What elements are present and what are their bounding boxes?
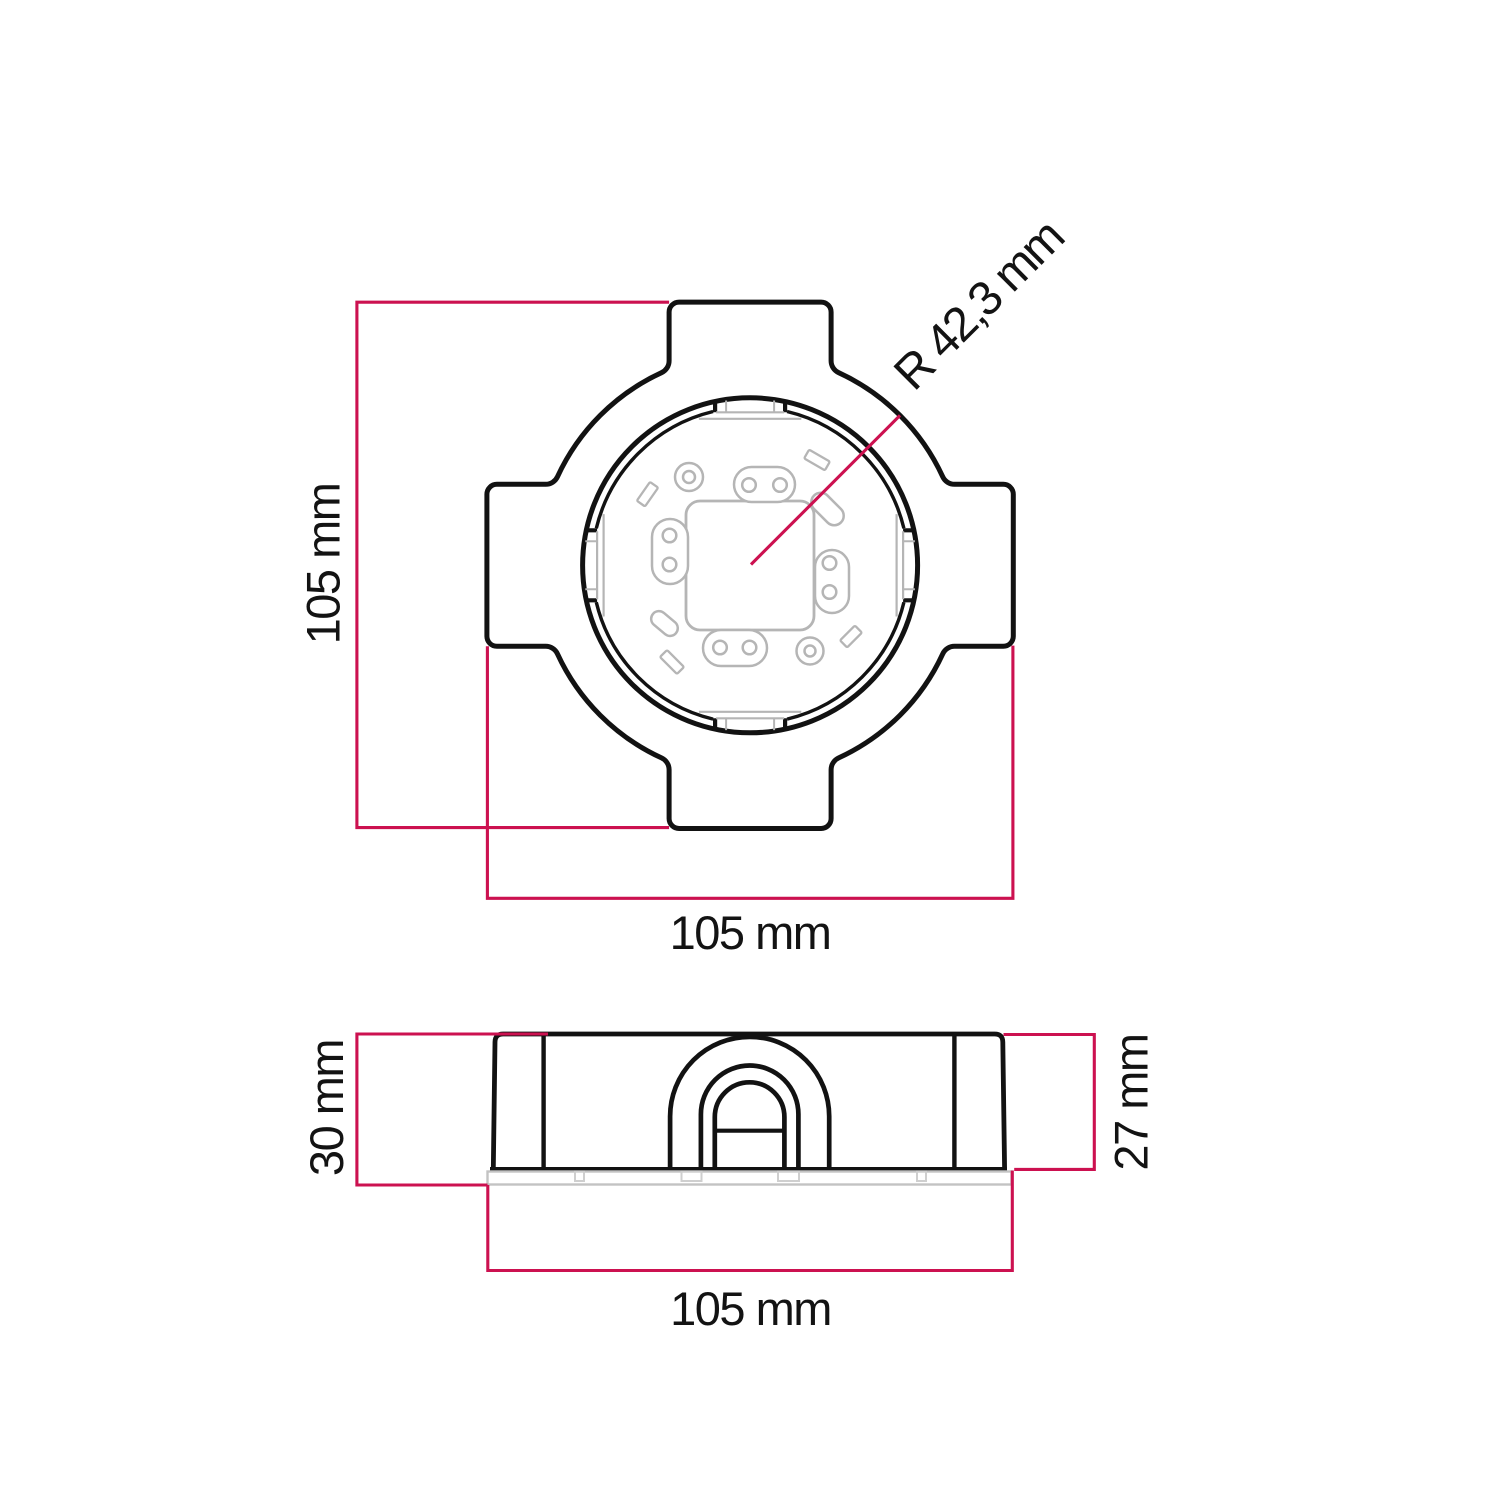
svg-text:105 mm: 105 mm [297,484,350,645]
svg-text:27 mm: 27 mm [1105,1034,1158,1170]
svg-text:30 mm: 30 mm [300,1040,353,1176]
svg-text:105 mm: 105 mm [670,1282,831,1335]
svg-text:105 mm: 105 mm [670,906,831,959]
